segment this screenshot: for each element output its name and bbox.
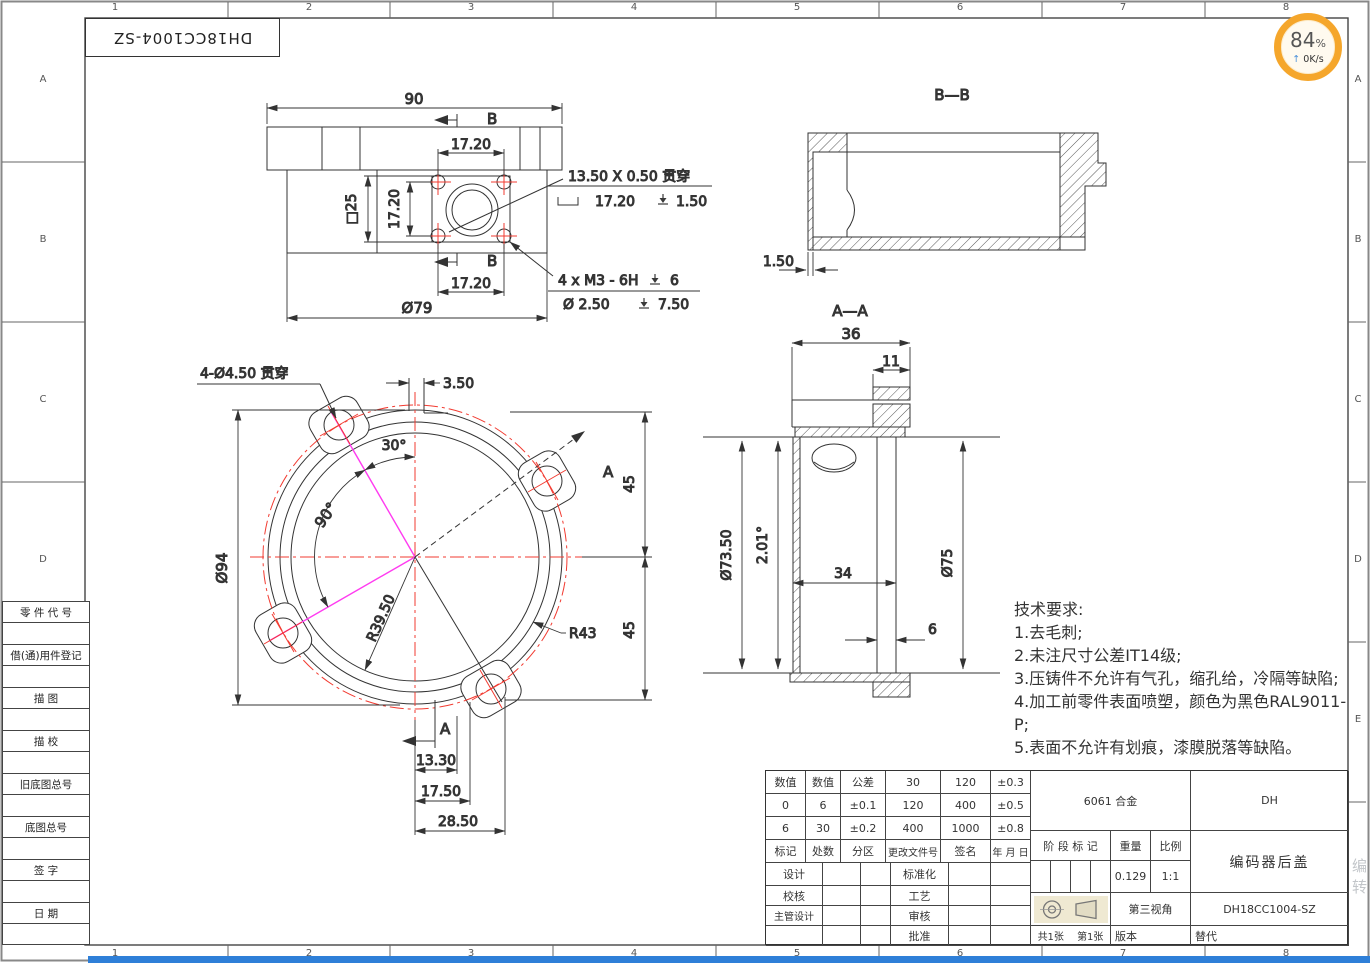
section-label: A	[440, 720, 451, 738]
tb-cell	[949, 926, 991, 946]
third-angle-projection-icon	[1034, 896, 1108, 923]
side-row-blank	[3, 881, 89, 903]
tb-cell: 标记	[766, 840, 806, 863]
section-label: A	[603, 463, 614, 481]
dim-label: Ø94	[213, 553, 231, 584]
side-row-label: 日 期	[3, 903, 89, 924]
zone-row-label: B	[35, 234, 51, 245]
tb-cell: 设计	[766, 863, 823, 886]
section-bb-view: B—B 1.50	[763, 86, 1106, 276]
watermark-text: 编转	[1349, 858, 1370, 900]
side-row-label: 底图总号	[3, 817, 89, 838]
dim-label: 1.50	[763, 254, 794, 270]
dim-label: □25	[344, 193, 360, 224]
dim-label: 45	[622, 475, 638, 493]
tb-cell	[1051, 861, 1071, 893]
zone-row-label: C	[1350, 394, 1366, 405]
drawing-sheet: 90 B 17.20 □25 17.20 B 17.20	[0, 0, 1370, 963]
view-title: A—A	[832, 302, 868, 320]
tb-part-name: 编码器后盖	[1191, 831, 1349, 893]
zone-col-label: 4	[626, 2, 642, 13]
callout-text: 4-Ø4.50 贯穿	[200, 366, 289, 382]
dim-label: 3.50	[443, 376, 474, 392]
counterbore-symbol-icon	[558, 197, 578, 205]
tb-cell: ±0.1	[841, 794, 886, 817]
dim-label: 90°	[311, 499, 341, 531]
tb-cell	[823, 926, 861, 946]
tb-cell: 120	[886, 794, 941, 817]
tb-cell	[991, 906, 1031, 926]
dim-label: 45	[622, 621, 638, 639]
tech-item: 5.表面不允许有划痕，漆膜脱落等缺陷。	[1014, 736, 1359, 759]
tb-company: DH	[1191, 771, 1349, 831]
zone-col-label: 2	[301, 2, 317, 13]
tb-cell: 0	[766, 794, 806, 817]
tb-cell	[991, 863, 1031, 886]
side-row-blank	[3, 666, 89, 688]
tb-cell	[1091, 861, 1111, 893]
tb-cell: 校核	[766, 886, 823, 906]
badge-unit: %	[1316, 37, 1326, 50]
dim-label: 36	[841, 325, 860, 343]
tb-cell	[949, 886, 991, 906]
callout-text: 6	[670, 273, 679, 289]
tb-cell: 处数	[806, 840, 841, 863]
tb-cell: 30	[806, 817, 841, 840]
tb-cell: 400	[886, 817, 941, 840]
dim-label: R39.50	[364, 592, 399, 644]
callout-text: 17.20	[595, 194, 635, 210]
tb-scale-label: 比例	[1151, 831, 1191, 861]
dim-label: 34	[834, 566, 852, 582]
tb-sheet-total: 共1张	[1038, 928, 1064, 943]
zone-col-label: 8	[1278, 2, 1294, 13]
dim-label: R43	[569, 626, 597, 642]
tb-cell	[861, 906, 891, 926]
tb-cell: 数值	[806, 771, 841, 794]
part-number: DH18CC1004-SZ	[113, 29, 252, 47]
callout-text: Ø 2.50	[563, 297, 610, 313]
tb-cell: 年 月 日	[991, 840, 1031, 863]
tb-cell	[823, 886, 861, 906]
tb-cell	[861, 926, 891, 946]
side-row-label: 签 字	[3, 860, 89, 881]
callout-text: 4 x M3 - 6H	[558, 273, 638, 289]
tech-item: 1.去毛刺;	[1014, 621, 1359, 644]
hole-centerlines	[425, 169, 517, 249]
download-status-badge[interactable]: 84% ↑ 0K/s	[1274, 13, 1342, 81]
tb-cell: 分区	[841, 840, 886, 863]
side-row-label: 描 图	[3, 688, 89, 709]
tb-cell: 更改文件号	[886, 840, 941, 863]
tech-item: 4.加工前零件表面喷塑，颜色为黑色RAL9011-P;	[1014, 690, 1359, 736]
tech-item: 3.压铸件不允许有气孔，缩孔给，冷隔等缺陷;	[1014, 667, 1359, 690]
side-row-blank	[3, 838, 89, 860]
tb-material: 6061 合金	[1031, 771, 1191, 831]
technical-requirements: 技术要求: 1.去毛刺; 2.未注尺寸公差IT14级; 3.压铸件不允许有气孔，…	[1014, 598, 1359, 759]
title-block: 数值 数值 公差 30 120 ±0.3 0 6 ±0.1 120 400 ±0…	[765, 770, 1348, 945]
tb-substitute: 替代	[1191, 926, 1349, 946]
tb-cell	[766, 926, 823, 946]
side-row-blank	[3, 924, 89, 946]
tb-cell: 签名	[941, 840, 991, 863]
zone-row-label: D	[1350, 554, 1366, 565]
dim-label: 30°	[382, 438, 407, 454]
tb-drawing-no: DH18CC1004-SZ	[1191, 893, 1349, 926]
tb-cell	[991, 886, 1031, 906]
tb-cell: ±0.8	[991, 817, 1031, 840]
tb-cell	[861, 863, 891, 886]
side-row-label: 描 校	[3, 731, 89, 752]
dim-label: 90	[404, 90, 423, 108]
tb-cell	[949, 906, 991, 926]
tb-cell	[823, 863, 861, 886]
zone-col-label: 7	[1115, 2, 1131, 13]
zone-row-label: A	[35, 74, 51, 85]
dim-label: 17.20	[451, 276, 491, 292]
tb-cell: 120	[941, 771, 991, 794]
callout-text: 1.50	[676, 194, 707, 210]
dim-label: 17.20	[387, 189, 403, 229]
tb-cell: 6	[806, 794, 841, 817]
zone-row-label: C	[35, 394, 51, 405]
zone-col-label: 1	[107, 2, 123, 13]
view-title: B—B	[934, 86, 970, 104]
tb-cell: ±0.3	[991, 771, 1031, 794]
dim-label: 6	[928, 622, 937, 638]
tb-scale-value: 1:1	[1151, 861, 1191, 893]
tb-cell	[1031, 861, 1051, 893]
tech-title: 技术要求:	[1014, 598, 1359, 621]
tb-projection-symbol	[1031, 893, 1111, 926]
dim-label: 17.20	[451, 137, 491, 153]
zone-col-label: 5	[789, 2, 805, 13]
tb-cell: 6	[766, 817, 806, 840]
side-registration-table: 零 件 代 号 借(通)用件登记 描 图 描 校 旧底图总号 底图总号 签 字 …	[2, 601, 90, 945]
depth-symbol-icon	[658, 194, 668, 204]
side-row-label: 借(通)用件登记	[3, 645, 89, 666]
tb-cell	[991, 926, 1031, 946]
tb-cell: 工艺	[891, 886, 949, 906]
zone-col-label: 6	[952, 2, 968, 13]
tb-weight-value: 0.129	[1111, 861, 1151, 893]
tb-cell: 审核	[891, 906, 949, 926]
side-row-blank	[3, 795, 89, 817]
tb-cell: ±0.5	[991, 794, 1031, 817]
tb-cell: 标准化	[891, 863, 949, 886]
badge-speed: 0K/s	[1303, 54, 1323, 65]
tb-cell: 批准	[891, 926, 949, 946]
dim-label: 11	[882, 354, 900, 370]
tb-sheet-no: 第1张	[1077, 928, 1103, 943]
tb-cell: 主管设计	[766, 906, 823, 926]
badge-percent: 84	[1290, 28, 1315, 52]
zone-col-label: 3	[463, 2, 479, 13]
tb-sheet-cell: 共1张 第1张	[1031, 926, 1111, 946]
tb-projection: 第三视角	[1111, 893, 1191, 926]
tb-cell: 30	[886, 771, 941, 794]
tb-cell	[1071, 861, 1091, 893]
section-aa-view: A—A 36 11 Ø73.50 2.01°	[703, 302, 1000, 697]
tb-cell: 1000	[941, 817, 991, 840]
depth-symbol-icon	[639, 298, 649, 308]
section-label: B	[487, 110, 497, 128]
depth-symbol-icon	[650, 274, 660, 284]
dim-label: 17.50	[421, 784, 461, 800]
side-row-label: 旧底图总号	[3, 774, 89, 795]
dim-label: Ø75	[940, 549, 956, 578]
part-number-box: DH18CC1004-SZ	[85, 18, 280, 57]
rear-view: 90 B 17.20 □25 17.20 B 17.20	[267, 90, 712, 322]
side-row-label: 零 件 代 号	[3, 602, 89, 623]
tb-cell: 数值	[766, 771, 806, 794]
side-row-blank	[3, 709, 89, 731]
tb-cell: ±0.2	[841, 817, 886, 840]
dim-label: Ø79	[402, 299, 433, 317]
tech-item: 2.未注尺寸公差IT14级;	[1014, 644, 1359, 667]
zone-row-label: B	[1350, 234, 1366, 245]
tb-cell: 公差	[841, 771, 886, 794]
tb-version: 版本	[1111, 926, 1191, 946]
side-row-blank	[3, 752, 89, 774]
tb-cell	[949, 863, 991, 886]
tb-cell: 400	[941, 794, 991, 817]
side-row-blank	[3, 623, 89, 645]
zone-row-label: A	[1350, 74, 1366, 85]
tb-cell	[861, 886, 891, 906]
tb-cell	[823, 906, 861, 926]
upload-arrow-icon: ↑	[1292, 54, 1300, 65]
section-label: B	[487, 252, 497, 270]
tb-stage-label: 阶 段 标 记	[1031, 831, 1111, 861]
bottom-blue-bar[interactable]	[88, 956, 1370, 963]
tb-weight-label: 重量	[1111, 831, 1151, 861]
dim-label: 2.01°	[755, 526, 771, 564]
zone-row-label: D	[35, 554, 51, 565]
dim-label: 13.30	[416, 753, 456, 769]
callout-text: 13.50 X 0.50 贯穿	[568, 169, 690, 185]
dim-label: Ø73.50	[719, 529, 735, 580]
callout-text: 7.50	[658, 297, 689, 313]
dim-label: 28.50	[438, 814, 478, 830]
front-view: 30° 90° A R43 R39.50 3.50 4-Ø4.50 贯穿	[197, 366, 652, 835]
